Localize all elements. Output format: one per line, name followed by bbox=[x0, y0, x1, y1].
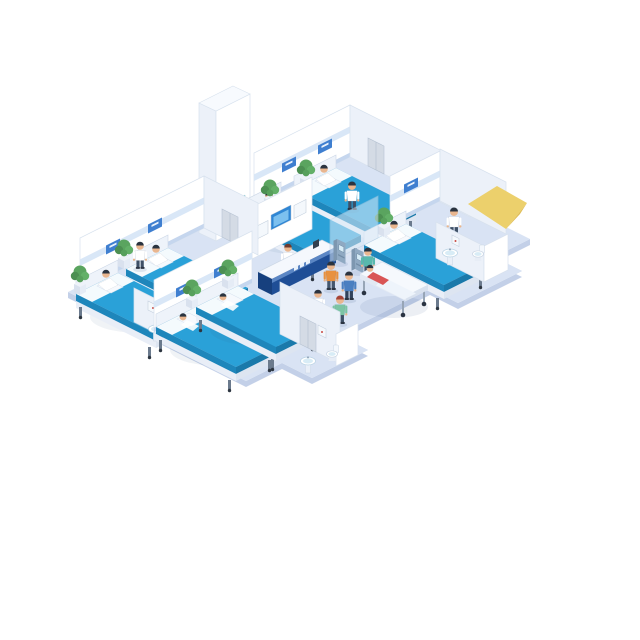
hospital-illustration bbox=[0, 0, 640, 640]
isometric-hospital-scene bbox=[0, 0, 640, 640]
